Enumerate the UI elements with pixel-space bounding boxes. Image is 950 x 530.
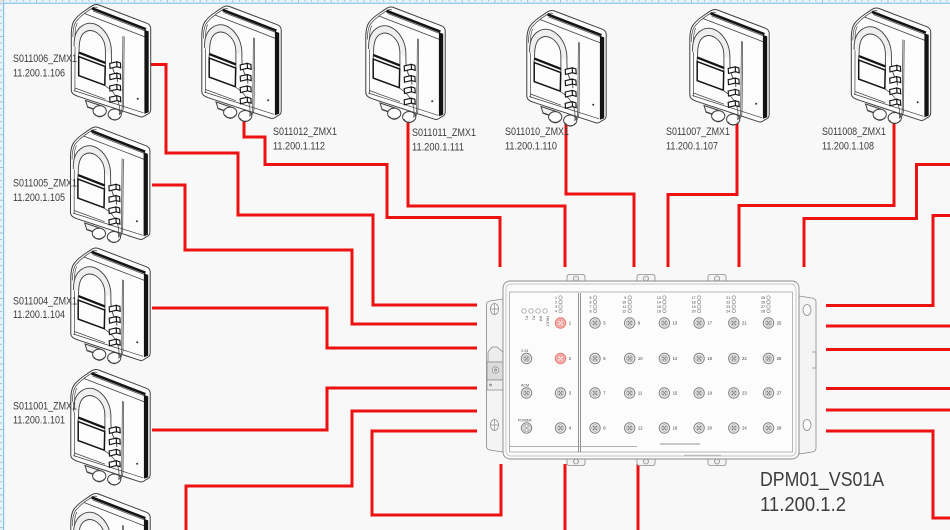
svg-text:23: 23 bbox=[742, 391, 747, 396]
svg-text:10: 10 bbox=[622, 300, 626, 304]
svg-text:DPM01_VS01A: DPM01_VS01A bbox=[760, 469, 885, 491]
svg-text:20: 20 bbox=[692, 309, 696, 313]
svg-text:11.200.1.111: 11.200.1.111 bbox=[412, 142, 464, 154]
svg-text:11.200.1.108: 11.200.1.108 bbox=[822, 141, 874, 153]
svg-text:11.200.1.105: 11.200.1.105 bbox=[13, 192, 65, 204]
svg-text:18: 18 bbox=[692, 300, 696, 304]
svg-text:12: 12 bbox=[622, 309, 626, 313]
svg-text:14: 14 bbox=[657, 300, 661, 304]
svg-text:25: 25 bbox=[761, 296, 765, 300]
svg-text:14: 14 bbox=[673, 356, 678, 361]
svg-text:28: 28 bbox=[761, 309, 765, 313]
svg-text:S011004_ZMX1: S011004_ZMX1 bbox=[13, 296, 77, 308]
svg-text:3: 3 bbox=[555, 305, 557, 309]
svg-text:17: 17 bbox=[707, 321, 712, 326]
svg-text:S011005_ZMX1: S011005_ZMX1 bbox=[13, 178, 77, 190]
svg-text:26: 26 bbox=[761, 300, 765, 304]
svg-text:19: 19 bbox=[707, 391, 712, 396]
svg-text:POWER: POWER bbox=[518, 419, 532, 423]
svg-text:6: 6 bbox=[590, 300, 592, 304]
svg-text:21: 21 bbox=[742, 321, 747, 326]
svg-text:11.200.1.2: 11.200.1.2 bbox=[760, 494, 846, 516]
svg-text:13: 13 bbox=[673, 321, 678, 326]
svg-text:28: 28 bbox=[777, 426, 782, 431]
svg-text:26: 26 bbox=[777, 356, 782, 361]
svg-text:ACM: ACM bbox=[521, 384, 529, 388]
svg-text:S011011_ZMX1: S011011_ZMX1 bbox=[412, 127, 476, 139]
svg-text:11.200.1.110: 11.200.1.110 bbox=[505, 141, 557, 153]
svg-text:11.200.1.107: 11.200.1.107 bbox=[666, 141, 718, 153]
svg-text:25: 25 bbox=[777, 321, 782, 326]
svg-text:11.200.1.104: 11.200.1.104 bbox=[13, 309, 65, 321]
svg-text:11: 11 bbox=[638, 391, 643, 396]
svg-text:27: 27 bbox=[777, 391, 782, 396]
svg-text:22: 22 bbox=[742, 356, 747, 361]
svg-text:9: 9 bbox=[624, 296, 626, 300]
svg-text:P2: P2 bbox=[531, 316, 535, 320]
svg-text:8: 8 bbox=[590, 309, 592, 313]
svg-text:2: 2 bbox=[555, 300, 557, 304]
svg-text:12: 12 bbox=[638, 426, 643, 431]
svg-text:S011006_ZMX1: S011006_ZMX1 bbox=[13, 53, 77, 65]
svg-text:19: 19 bbox=[692, 305, 696, 309]
svg-text:11.200.1.106: 11.200.1.106 bbox=[13, 68, 65, 80]
svg-text:21: 21 bbox=[726, 296, 730, 300]
svg-text:X.24: X.24 bbox=[521, 349, 528, 353]
svg-text:11.200.1.112: 11.200.1.112 bbox=[273, 141, 325, 153]
svg-text:11: 11 bbox=[622, 305, 626, 309]
svg-text:13: 13 bbox=[657, 296, 661, 300]
svg-text:22: 22 bbox=[726, 300, 730, 304]
svg-text:S011007_ZMX1: S011007_ZMX1 bbox=[666, 126, 730, 138]
svg-text:P1: P1 bbox=[524, 316, 528, 320]
svg-text:15: 15 bbox=[657, 305, 661, 309]
svg-text:S011001_ZMX1: S011001_ZMX1 bbox=[13, 401, 77, 413]
svg-text:20: 20 bbox=[707, 426, 712, 431]
svg-text:17: 17 bbox=[692, 296, 696, 300]
svg-text:S011010_ZMX1: S011010_ZMX1 bbox=[505, 126, 569, 138]
svg-text:7: 7 bbox=[590, 305, 592, 309]
svg-text:1: 1 bbox=[555, 296, 557, 300]
svg-text:10: 10 bbox=[638, 356, 643, 361]
svg-text:11.200.1.101: 11.200.1.101 bbox=[13, 415, 65, 427]
svg-text:RM: RM bbox=[538, 316, 542, 321]
svg-text:5: 5 bbox=[590, 296, 592, 300]
svg-text:23: 23 bbox=[726, 305, 730, 309]
svg-text:4: 4 bbox=[555, 309, 557, 313]
svg-text:16: 16 bbox=[657, 309, 661, 313]
svg-text:27: 27 bbox=[761, 305, 765, 309]
svg-text:24: 24 bbox=[726, 309, 730, 313]
svg-text:FAULT: FAULT bbox=[545, 316, 549, 326]
svg-text:18: 18 bbox=[707, 356, 712, 361]
svg-text:15: 15 bbox=[673, 391, 678, 396]
svg-text:16: 16 bbox=[673, 426, 678, 431]
svg-text:S011012_ZMX1: S011012_ZMX1 bbox=[273, 126, 337, 138]
svg-text:S011008_ZMX1: S011008_ZMX1 bbox=[822, 126, 886, 138]
svg-text:24: 24 bbox=[742, 426, 747, 431]
